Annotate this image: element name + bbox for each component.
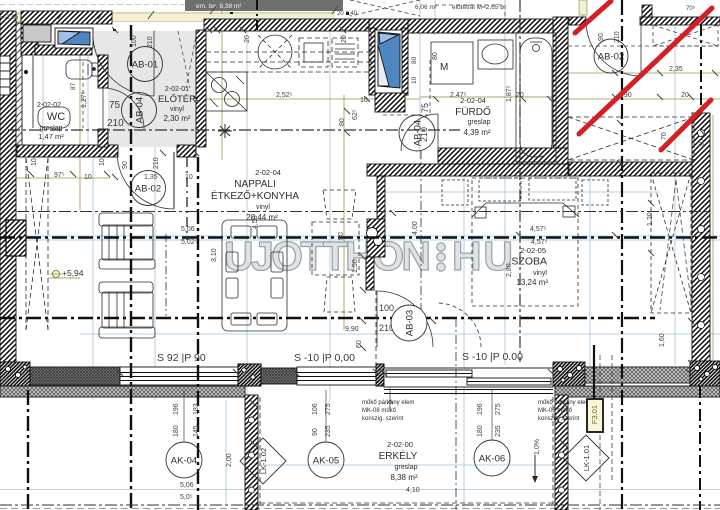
svg-text:2,52⁵: 2,52⁵ (276, 92, 293, 99)
svg-text:M: M (440, 62, 448, 73)
svg-text:2-02-02: 2-02-02 (37, 102, 61, 109)
svg-text:8,38 m²: 8,38 m² (390, 473, 417, 482)
svg-text:=-2,65: =-2,65 (1, 15, 19, 21)
svg-text:SZOBA: SZOBA (511, 256, 547, 268)
svg-text:80: 80 (339, 118, 346, 126)
svg-text:106: 106 (312, 403, 319, 415)
svg-text:1,47 m²: 1,47 m² (38, 132, 64, 141)
svg-text:75: 75 (420, 103, 430, 113)
svg-text:196: 196 (477, 403, 484, 415)
svg-text:9,90: 9,90 (345, 326, 359, 333)
svg-text:210: 210 (107, 118, 124, 129)
svg-text:10: 10 (185, 174, 193, 181)
svg-text:MK-08 műkő: MK-08 műkő (362, 408, 397, 414)
svg-text:S -10 |P 0,00: S -10 |P 0,00 (294, 352, 355, 364)
svg-text:1,27⁵: 1,27⁵ (81, 91, 88, 108)
svg-text:20,44 m²: 20,44 m² (246, 213, 278, 222)
svg-text:vinyl: vinyl (533, 270, 547, 277)
svg-text:70: 70 (661, 132, 668, 140)
svg-text:MK-08 műkő: MK-08 műkő (538, 408, 573, 414)
svg-text:80: 80 (411, 56, 418, 64)
svg-text:1,0%: 1,0% (534, 439, 541, 455)
svg-text:S 92 |P 90: S 92 |P 90 (157, 352, 206, 364)
svg-text:LK-1.01: LK-1.01 (582, 445, 591, 471)
svg-text:4,57⁵: 4,57⁵ (530, 226, 547, 233)
svg-text:4,57⁵: 4,57⁵ (531, 239, 548, 246)
svg-text:WC: WC (47, 111, 65, 123)
svg-text:10: 10 (99, 158, 106, 166)
svg-text:F3.01: F3.01 (590, 405, 599, 424)
svg-text:6,06 m²: 6,06 m² (415, 4, 438, 11)
svg-text:4,00: 4,00 (412, 221, 419, 235)
svg-text:FÜRDŐ: FÜRDŐ (455, 104, 491, 118)
svg-text:90: 90 (312, 428, 319, 436)
svg-text:5,0⁵: 5,0⁵ (180, 494, 193, 501)
svg-text:LK-1.02: LK-1.02 (259, 448, 268, 474)
svg-text:70⁵: 70⁵ (686, 5, 696, 12)
svg-text:2-02-00: 2-02-00 (387, 440, 413, 449)
svg-text:183: 183 (193, 403, 200, 415)
svg-text:196: 196 (173, 403, 180, 415)
svg-text:1,60: 1,60 (659, 333, 666, 347)
svg-text:5,06: 5,06 (181, 226, 195, 233)
svg-text:AB-02: AB-02 (135, 184, 161, 195)
svg-text:1,20: 1,20 (647, 212, 654, 226)
svg-text:2,30 m²: 2,30 m² (163, 114, 190, 123)
svg-text:90: 90 (598, 33, 605, 41)
svg-text:20: 20 (516, 92, 524, 99)
svg-text:210: 210 (153, 157, 160, 169)
svg-text:50: 50 (338, 232, 345, 240)
svg-text:2,35: 2,35 (669, 66, 683, 73)
svg-text:20: 20 (244, 35, 251, 43)
svg-text:NAPPALI: NAPPALI (234, 179, 276, 190)
svg-text:AB-03: AB-03 (405, 310, 416, 336)
svg-text:180: 180 (477, 425, 484, 437)
svg-text:ÉTKEZŐ+KONYHA: ÉTKEZŐ+KONYHA (211, 188, 299, 202)
svg-text:előtétfal M=2,65 ⌀: előtétfal M=2,65 ⌀ (452, 4, 504, 11)
svg-text:5,02⁵: 5,02⁵ (181, 239, 198, 246)
svg-text:4,10: 4,10 (406, 487, 420, 494)
svg-text:5,06: 5,06 (180, 482, 194, 489)
svg-text:97⁵: 97⁵ (54, 172, 65, 179)
svg-text:+5,94: +5,94 (62, 268, 84, 278)
svg-text:210: 210 (147, 36, 154, 48)
svg-text:80: 80 (432, 52, 439, 60)
svg-text:2-02-01: 2-02-01 (165, 86, 189, 93)
svg-text:em. ter. 8,38 m²: em. ter. 8,38 m² (196, 3, 242, 10)
svg-text:145: 145 (193, 425, 200, 437)
svg-text:20: 20 (699, 139, 706, 147)
svg-text:ELŐTÉR: ELŐTÉR (158, 94, 196, 105)
svg-text:AB-04: AB-04 (135, 97, 146, 123)
svg-text:3,10: 3,10 (211, 248, 218, 262)
svg-text:100: 100 (379, 303, 394, 313)
svg-text:4,39 m²: 4,39 m² (463, 128, 490, 137)
svg-text:műkő párkány elem: műkő párkány elem (538, 400, 590, 406)
svg-text:2,00: 2,00 (226, 453, 233, 467)
svg-text:2-02-04: 2-02-04 (255, 168, 281, 177)
svg-text:87: 87 (70, 82, 77, 90)
svg-text:UJOTTHON: UJOTTHON (224, 233, 430, 279)
svg-text:vinyl: vinyl (170, 106, 184, 113)
svg-text:62⁵: 62⁵ (352, 109, 359, 120)
svg-text:greslap: greslap (40, 125, 63, 132)
svg-text:13,24 m²: 13,24 m² (516, 278, 548, 287)
svg-text:konszig. szerint: konszig. szerint (538, 416, 580, 422)
svg-text:20 1,40: 20 1,40 (337, 11, 358, 17)
svg-text:AB-04: AB-04 (413, 120, 424, 146)
svg-text:100: 100 (131, 35, 138, 47)
svg-text:75: 75 (109, 100, 121, 111)
svg-text:10: 10 (31, 158, 38, 166)
svg-text:2-02-04: 2-02-04 (460, 96, 486, 105)
svg-text:1,87⁵: 1,87⁵ (506, 85, 513, 102)
svg-text:greslap: greslap (395, 464, 418, 471)
svg-text:275: 275 (495, 403, 502, 415)
svg-text:1,35: 1,35 (144, 174, 158, 181)
svg-text:2-02-05: 2-02-05 (520, 246, 546, 255)
svg-text:AK-04: AK-04 (171, 456, 197, 467)
svg-text:1,50: 1,50 (352, 259, 359, 273)
svg-text:10: 10 (411, 76, 418, 84)
svg-text:vinyl: vinyl (256, 204, 270, 211)
svg-text:20: 20 (681, 92, 689, 99)
svg-text:konszig. szerint: konszig. szerint (362, 416, 404, 422)
svg-text:180: 180 (173, 425, 180, 437)
svg-text:AK-06: AK-06 (479, 454, 505, 465)
svg-text:235: 235 (495, 425, 502, 437)
svg-text:AK-05: AK-05 (313, 456, 339, 467)
svg-text:10: 10 (84, 174, 92, 181)
svg-text:AB-02: AB-02 (598, 52, 624, 63)
svg-text:greslap: greslap (468, 119, 491, 126)
svg-text:S -10 |P 0.00: S -10 |P 0.00 (462, 351, 523, 363)
svg-text:ERKÉLY: ERKÉLY (379, 449, 418, 462)
svg-text:AB-01: AB-01 (132, 60, 158, 71)
svg-text:20: 20 (341, 35, 348, 43)
svg-text:90: 90 (122, 161, 129, 169)
